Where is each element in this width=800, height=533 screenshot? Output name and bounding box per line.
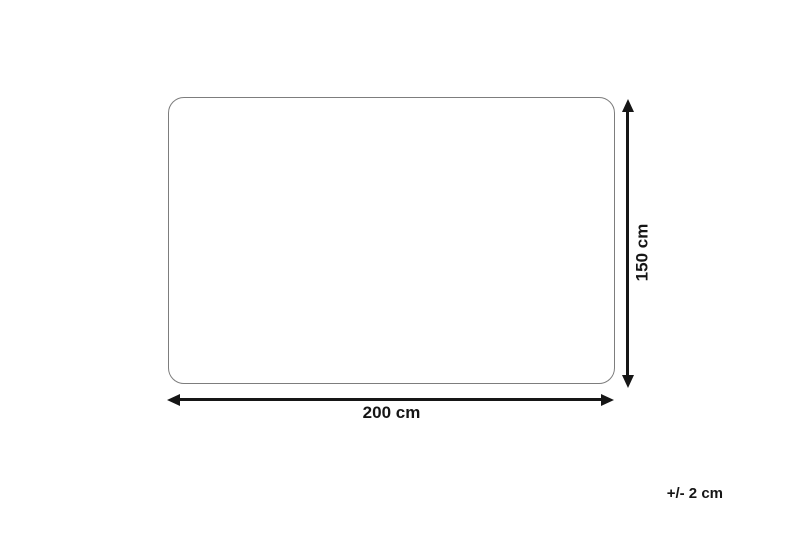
width-label: 200 cm (168, 403, 615, 423)
product-outline (168, 97, 615, 384)
arrow-line (626, 108, 629, 379)
height-label: 150 cm (630, 208, 655, 298)
arrow-line (176, 398, 605, 401)
tolerance-label: +/- 2 cm (623, 485, 723, 502)
arrow-head-down-icon (622, 375, 634, 388)
dimension-diagram: 200 cm 150 cm +/- 2 cm (0, 0, 800, 533)
